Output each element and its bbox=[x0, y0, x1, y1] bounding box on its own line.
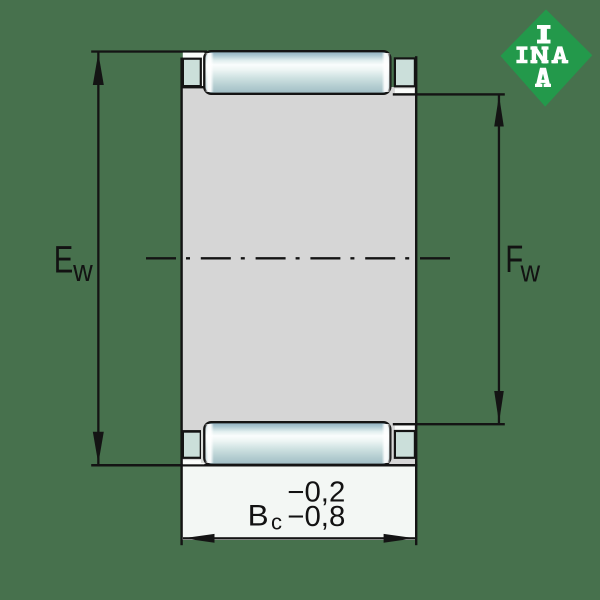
svg-text:w: w bbox=[520, 254, 541, 289]
svg-text:w: w bbox=[72, 253, 93, 288]
svg-text:B: B bbox=[248, 499, 269, 532]
svg-text:E: E bbox=[54, 239, 74, 281]
svg-text:c: c bbox=[271, 509, 282, 534]
svg-text:−0,8: −0,8 bbox=[287, 501, 345, 533]
